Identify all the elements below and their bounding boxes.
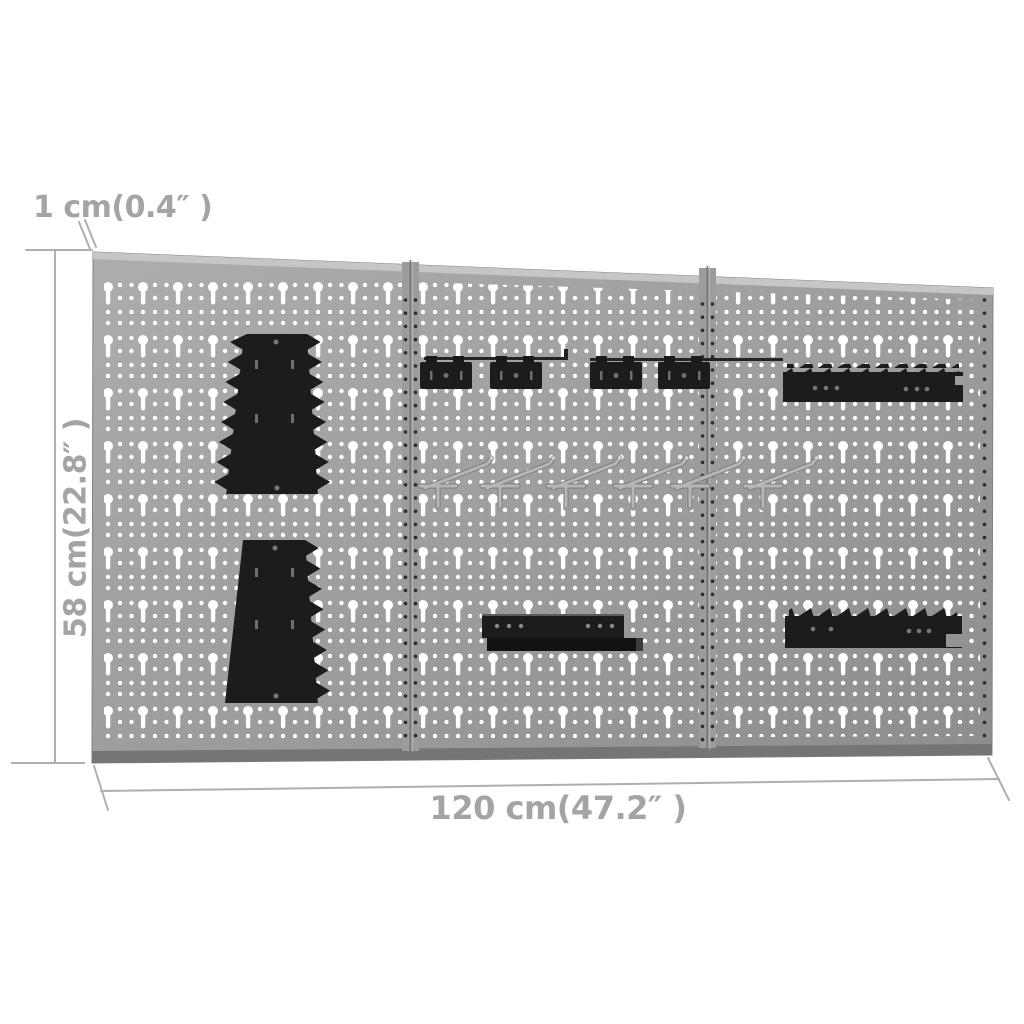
shelf-bracket	[482, 614, 643, 651]
serrated-tool-bar-bottom	[785, 608, 962, 648]
serrated-tool-bar-top	[783, 364, 963, 402]
thickness-dimension-label: 1 cm(0.4″ )	[33, 190, 212, 225]
panel-seam-1-highlight	[412, 260, 413, 752]
width-left-extension	[94, 766, 108, 810]
panel-seam-2	[707, 266, 709, 750]
pegboard-illustration	[0, 0, 1024, 1024]
pegboard-dimension-diagram: 1 cm(0.4″ ) 58 cm(22.8″ ) 120 cm(47.2″ )	[0, 0, 1024, 1024]
width-dimension-label: 120 cm(47.2″ )	[430, 789, 687, 827]
height-dimension-label: 58 cm(22.8″ )	[59, 418, 94, 638]
panel-seam-1	[410, 260, 412, 752]
panel-seam-2-highlight	[709, 266, 710, 750]
